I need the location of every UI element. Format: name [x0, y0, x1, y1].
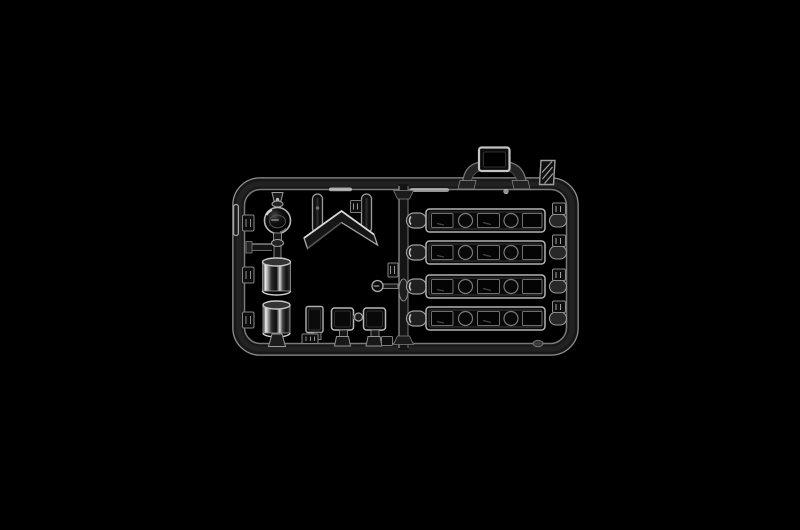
- neck-cross-joint: [272, 240, 284, 247]
- runner-leaf-bulge: [399, 279, 408, 301]
- photo-stage: [0, 0, 800, 530]
- runner-bottom-flare: [394, 336, 414, 345]
- window-gate-foot: [335, 337, 351, 347]
- left-rail-number-tab: [243, 215, 255, 231]
- cylinder-top-rim: [263, 258, 291, 266]
- window-gate-foot: [366, 337, 382, 347]
- rail-number-tab: [302, 334, 318, 344]
- window-stem: [371, 330, 379, 337]
- left-rail-number-tab: [243, 267, 255, 283]
- cylinder-gate-foot: [269, 334, 286, 347]
- handle-right-foot: [512, 181, 530, 190]
- handle-left-foot: [458, 181, 476, 190]
- cylinder-lens-upper: [263, 258, 291, 295]
- bottom-rail-bump: [533, 340, 543, 346]
- lens-stem: [382, 284, 398, 289]
- hatched-label-tab: [540, 161, 556, 185]
- rail-number-tab: [382, 337, 393, 346]
- roof-hatch-window: [479, 148, 510, 172]
- drop-number-tab: [351, 201, 362, 213]
- sprue-photo: [0, 0, 800, 530]
- dome-lens-collar: [272, 201, 283, 207]
- runner-number-tab: [388, 263, 398, 277]
- runner-top-flare: [394, 191, 414, 200]
- left-rail-number-tab: [243, 312, 255, 328]
- window-stem: [340, 330, 348, 337]
